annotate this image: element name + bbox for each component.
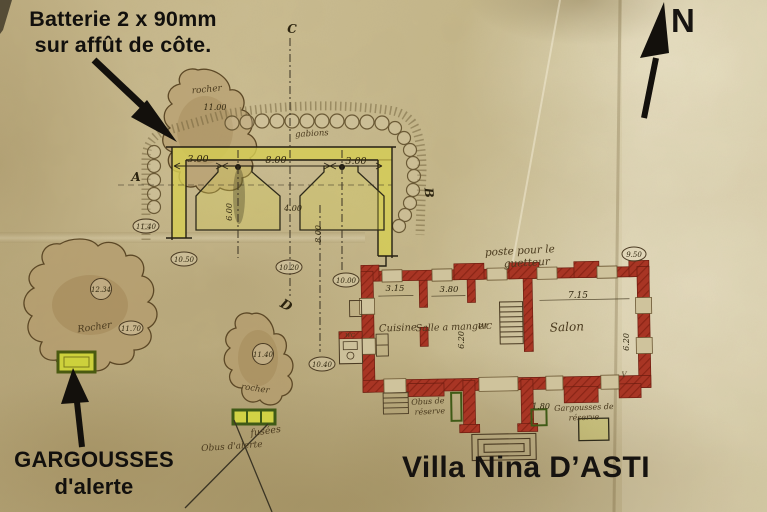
battery-width-mid: 8.00 [265, 155, 286, 166]
gargousses-alerte-box [58, 352, 95, 372]
annex-wc-label: WC [345, 333, 356, 339]
rock-left-spot-height: 12.34 [91, 286, 111, 294]
room-kitchen-label: Cuisine [379, 322, 417, 334]
battery-width-left: 3.00 [187, 154, 208, 165]
villa-depth-mid: 6.20 [457, 331, 466, 349]
villa-title: Villa Nina D’ASTI [402, 451, 702, 485]
battery-annotation-line2: sur affût de côte. [4, 32, 242, 58]
kitchen-width: 3.15 [386, 284, 405, 294]
guard-post-note-line2: guetteur [503, 256, 551, 270]
battery-depth-mid: 4.00 [283, 204, 302, 213]
elevation-1000: 10.00 [336, 277, 357, 285]
fusees-box [233, 410, 275, 424]
gargousses-annotation-line1: GARGOUSSES [8, 447, 180, 474]
section-letter-c: C [287, 22, 297, 36]
section-letter-a: A [130, 170, 140, 184]
battery-axis-length: 8.00 [314, 225, 323, 243]
north-label: N [671, 2, 695, 40]
obus-reserve-line2: réserve [414, 406, 445, 417]
battery-annotation: Batterie 2 x 90mm sur affût de côte. [4, 6, 242, 58]
porch-width: 1.80 [532, 402, 550, 411]
rock-top-elevation: 11.00 [204, 103, 227, 112]
gargousses-annotation-line2: d'alerte [8, 474, 180, 501]
rock-middle-spot-height: 11.40 [253, 351, 274, 359]
scanned-plan-photo: 11.40 10.50 10.20 10.00 10.40 9.50 11.70… [0, 0, 767, 512]
gargousses-annotation: GARGOUSSES d'alerte [8, 447, 180, 501]
section-letter-b: B [421, 186, 436, 198]
battery-width-right: 3.00 [345, 156, 366, 167]
elevation-1040: 10.40 [312, 361, 333, 369]
ink-smudge [233, 168, 245, 224]
battery-depth-left: 6.00 [225, 203, 234, 221]
salon-width: 7.15 [568, 291, 588, 301]
gabions-label: gabions [295, 128, 330, 140]
gargousses-reserve-line2: réserve [569, 412, 600, 422]
elevation-1020: 10.20 [279, 264, 300, 272]
obus-reserve-line1: Obus de [411, 396, 445, 407]
elevation-950: 9.50 [626, 251, 642, 259]
plan-drawing: 11.40 10.50 10.20 10.00 10.40 9.50 11.70… [0, 0, 767, 512]
rock-left-elevation: 11.70 [121, 325, 142, 333]
elevation-1140: 11.40 [136, 223, 157, 231]
elevation-1050: 10.50 [174, 256, 195, 264]
room-salon-label: Salon [550, 319, 585, 334]
room-wc-label: WC [478, 322, 492, 331]
battery-annotation-line1: Batterie 2 x 90mm [4, 6, 242, 32]
dining-width: 3.80 [440, 285, 460, 295]
villa-depth-right: 6.20 [622, 333, 631, 351]
